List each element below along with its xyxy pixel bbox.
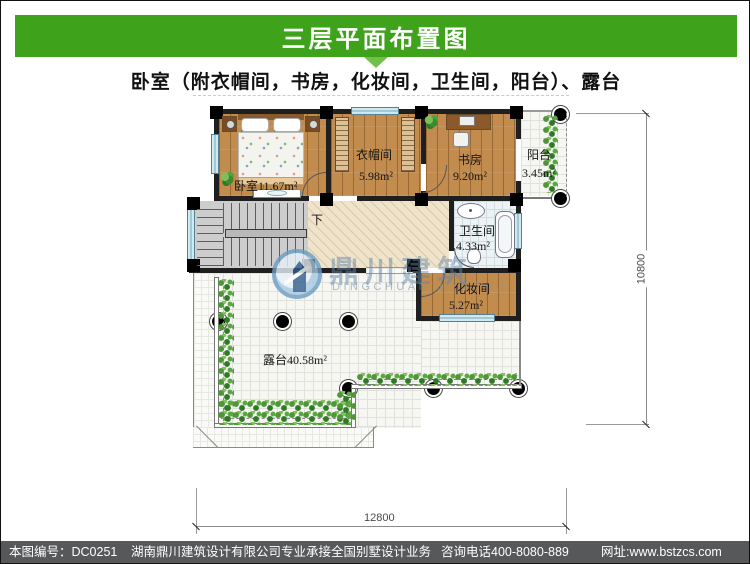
wall-study-bottom	[421, 196, 521, 201]
dim-width-label: 12800	[361, 512, 398, 524]
terrace-plants-right	[357, 373, 517, 386]
dressing-area: 5.27m²	[449, 298, 483, 313]
bed-pillow	[273, 118, 301, 132]
footer-website: 网址:www.bstzcs.com	[601, 541, 722, 563]
footer-bar: 本图编号：DC0251 湖南鼎川建筑设计有限公司专业承接全国别墅设计业务 咨询电…	[1, 541, 749, 563]
cloakroom-name: 衣帽间	[356, 146, 392, 163]
corridor-floor	[308, 201, 449, 268]
terrace-edge-right	[519, 321, 521, 386]
cloakroom-window	[351, 107, 399, 115]
footer-company: 湖南鼎川建筑设计有限公司专业承接全国别墅设计业务	[131, 541, 431, 563]
lamp	[226, 120, 235, 129]
wall-cloakroom-bottom	[357, 196, 421, 201]
bedroom-plant	[220, 172, 234, 186]
column	[320, 106, 333, 119]
study-plant	[424, 115, 438, 129]
bedroom-label: 卧室11.67m²	[234, 177, 298, 194]
wardrobe-right	[401, 117, 415, 172]
round-column	[340, 313, 357, 330]
footer-drawing-code: 本图编号：DC0251	[9, 541, 117, 563]
dim-ext-bottom	[586, 424, 649, 425]
terrace-skirt-bottom	[193, 427, 374, 448]
terrace-plants-bottom	[219, 400, 351, 425]
bedroom-window	[211, 134, 219, 174]
balcony-dashed-edge	[566, 113, 567, 197]
column	[510, 193, 523, 206]
stairs-handrail	[225, 229, 307, 238]
wall-dressing-right	[516, 273, 521, 321]
bathtub-inner	[498, 215, 512, 253]
column	[415, 193, 428, 206]
column	[508, 259, 521, 272]
desk-chair	[453, 132, 469, 147]
balcony-name: 阳台	[527, 146, 551, 163]
column	[407, 259, 420, 272]
lamp	[309, 120, 318, 129]
bed-duvet	[238, 132, 304, 178]
wall-bedroom-cloakroom	[326, 109, 331, 201]
roof-dashed-line	[193, 95, 569, 96]
dim-ext-top	[576, 113, 649, 114]
stairs-landing	[197, 203, 223, 266]
balcony-area: 3.45m²	[522, 166, 556, 181]
column	[510, 106, 523, 119]
dim-line-bottom	[196, 526, 567, 527]
study-name: 书房	[458, 151, 482, 168]
bed-pillow	[241, 118, 269, 132]
dressing-window	[439, 314, 495, 322]
bathroom-name: 卫生间	[459, 222, 495, 239]
floor-plan-page: 三层平面布置图 卧室（附衣帽间，书房，化妆间，卫生间，阳台）、露台	[0, 0, 750, 564]
round-column	[274, 313, 291, 330]
dressing-name: 化妆间	[454, 280, 490, 297]
wall-bathroom-left	[449, 201, 454, 251]
plan-subtitle: 卧室（附衣帽间，书房，化妆间，卫生间，阳台）、露台	[1, 67, 750, 94]
page-title: 三层平面布置图	[15, 15, 737, 57]
terrace-threshold	[366, 267, 413, 274]
desk-monitor	[459, 116, 475, 126]
cloakroom-area: 5.98m²	[359, 169, 393, 184]
bathroom-area: 4.33m²	[456, 239, 490, 254]
wardrobe-left	[335, 117, 349, 172]
terrace-label: 露台40.58m²	[263, 351, 327, 368]
stairwell-window	[187, 209, 195, 263]
study-area: 9.20m²	[453, 169, 487, 184]
bathroom-window	[514, 213, 522, 249]
sink-drain	[469, 209, 472, 212]
stairs-flight-lower	[223, 237, 306, 266]
dim-height-label: 10800	[635, 251, 647, 288]
terrace-skirt-left	[193, 273, 214, 448]
wall-corridor-bottom-left	[189, 268, 366, 273]
footer-phone: 咨询电话400-8080-889	[441, 541, 569, 563]
terrace-plants-corner	[337, 391, 355, 425]
stairs-down-label: 下	[311, 211, 323, 228]
